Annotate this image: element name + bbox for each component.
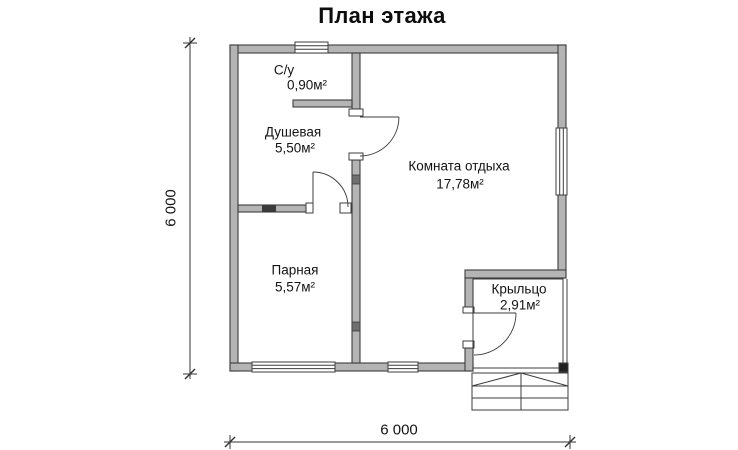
wall-porch-left-lower [465,348,473,371]
room-area-wc: 0,90м² [287,78,327,93]
window-right [556,128,567,195]
flue-insert-lower [352,322,360,331]
door-porch [474,313,516,355]
jamb-porch-door-bottom [463,341,474,348]
porch-steps [472,373,568,410]
door-shower-arc [313,172,348,207]
wall-interior-vertical-upper [352,53,360,109]
room-area-porch: 2,91м² [500,298,540,313]
dimension-label-height: 6 000 [164,189,179,227]
room-area-shower: 5,50м² [275,141,315,156]
room-name-wc: С/у [274,63,294,78]
stove-insert [262,205,276,212]
window-top [295,42,328,53]
wall-porch-top [465,270,566,278]
room-name-steam: Парная [272,263,319,278]
room-area-steam: 5,57м² [275,280,315,295]
dimension-line-left [183,37,197,379]
door-porch-arc [474,313,516,355]
doors [313,117,516,355]
jamb-lounge-door-bottom [349,153,363,160]
wall-interior-vertical-lower [352,160,360,363]
window-bottom-lounge [388,362,418,372]
room-name-lounge: Комната отдыха [408,159,509,174]
room-name-porch: Крыльцо [491,282,546,297]
door-jambs [306,109,474,348]
wall-inserts [262,175,360,331]
room-area-lounge: 17,78м² [436,177,484,192]
porch-corner-post [559,363,568,372]
dimension-label-width: 6 000 [380,423,418,438]
wall-porch-left-upper [465,278,473,307]
jamb-lounge-door-top [349,109,363,116]
jamb-porch-door-top [463,307,474,313]
room-name-shower: Душевая [265,125,321,140]
jamb-shower-door-left [306,203,313,213]
wall-top [230,45,566,53]
door-lounge-arc [360,117,399,156]
door-shower [313,172,348,207]
door-lounge [360,117,399,156]
jamb-shower-door-right [340,203,351,213]
flue-insert-upper [352,175,360,184]
walls [230,45,566,371]
floor-plan-page: План этажа С/у 0,90м² Душевая 5,50м² Ком… [0,0,738,450]
page-title: План этажа [318,3,445,29]
floor-plan-drawing [0,0,738,450]
wall-left [230,45,238,371]
wall-wc-bottom [293,100,352,107]
window-bottom-steam [252,362,335,372]
